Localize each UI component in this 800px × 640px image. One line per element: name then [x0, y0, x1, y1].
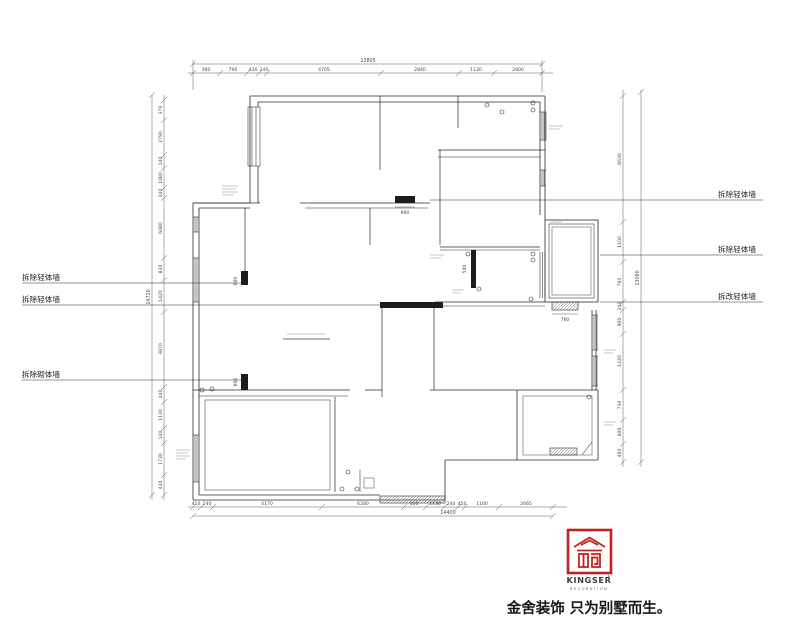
micro-annotations — [176, 126, 616, 459]
dim-value: 450 — [458, 501, 467, 507]
window-sill-br — [550, 448, 577, 455]
dim-value: 240 — [260, 67, 269, 73]
dim-value: 4170 — [261, 501, 273, 507]
dim-value: 8630 — [617, 153, 623, 165]
registered-mark: ® — [607, 575, 610, 579]
dim-value: 430 — [158, 481, 164, 490]
window-east-4 — [592, 356, 598, 386]
dim-value: 730 — [617, 401, 623, 410]
dim-value: 6080 — [158, 222, 164, 234]
window-sill-annex — [552, 302, 578, 310]
dim-sill: 760 — [561, 317, 570, 323]
dimension-chain-top — [188, 60, 553, 92]
room-bottom-left-inner — [205, 400, 330, 490]
dim-value: 1080 — [158, 172, 164, 184]
window-west-1 — [193, 217, 199, 232]
dim-values-left: 370 2790 140 1080 240 6080 830 1420 3870… — [146, 106, 164, 490]
dim-value: 1420 — [158, 290, 164, 302]
tick-marks — [190, 504, 556, 519]
dim-total-top: 13805 — [360, 58, 375, 64]
dim-opening: 900 — [401, 210, 410, 216]
dim-value: 900 — [617, 318, 623, 327]
cad-floorplan-sheet: 390 790 430 240 4705 2840 1130 2800 1380… — [0, 0, 800, 640]
label-right-2: 拆除轻体墙 — [718, 244, 756, 254]
room-bathroom — [435, 247, 545, 306]
dim-wall: 600 — [233, 277, 239, 286]
dim-value: 240 — [158, 189, 164, 198]
label-left-2: 拆除轻体墙 — [22, 294, 60, 304]
window-west-3 — [193, 435, 199, 482]
dim-value: 4705 — [318, 67, 330, 73]
brand-name: KINGSER — [567, 575, 612, 585]
dim-value: 6280 — [357, 501, 369, 507]
demolition-walls — [241, 196, 476, 390]
dim-value: 1420 — [617, 355, 623, 367]
floor-plan-svg: 390 790 430 240 4705 2840 1130 2800 1380… — [0, 0, 800, 640]
dim-wall: 500 — [462, 265, 468, 274]
dim-value: 460 — [617, 449, 623, 458]
kingser-logo: KINGSER ® DECORATION — [567, 530, 612, 591]
fixture-box — [364, 478, 374, 488]
dim-value: 600 — [617, 428, 623, 437]
room-bottom-right — [517, 390, 598, 460]
demolition-wall-d — [241, 374, 248, 390]
dim-value: 390 — [202, 67, 211, 73]
label-left-1: 拆除轻体墙 — [22, 272, 60, 282]
fixture-symbols — [200, 101, 591, 491]
dim-value: 1130 — [470, 67, 482, 73]
interior-dimensions: 900 760 500 600 600 — [233, 207, 578, 386]
dim-total-left: 14720 — [146, 289, 152, 304]
dim-wall: 600 — [233, 378, 239, 387]
dim-value: 440 — [158, 390, 164, 399]
dim-value: 830 — [158, 265, 164, 274]
demolition-wall-a — [395, 196, 415, 203]
dim-value: 430 — [249, 67, 258, 73]
dim-value: 240 — [617, 302, 623, 311]
dim-values-right: 8630 1100 760 240 900 1420 730 600 460 1… — [617, 153, 641, 457]
brand-slogan: 金舍装饰 只为别墅而生。 — [506, 599, 672, 617]
dim-total-bottom: 14400 — [440, 510, 455, 516]
dim-value: 1100 — [617, 236, 623, 248]
window-sill-bottom — [380, 496, 445, 503]
dim-value: 240 — [203, 501, 212, 507]
dim-value: 140 — [158, 431, 164, 440]
dim-value: 2790 — [158, 131, 164, 143]
label-right-3: 拆改轻体墙 — [718, 291, 756, 301]
dim-value: 240 — [447, 501, 456, 507]
dim-value: 410 — [192, 501, 201, 507]
dim-value: 140 — [158, 157, 164, 166]
window-bath-annex — [540, 252, 545, 298]
dim-value: 1730 — [158, 453, 164, 465]
dimension-chain-bottom — [188, 504, 567, 519]
logo-glyph — [574, 538, 605, 568]
label-right-1: 拆除轻体墙 — [718, 189, 756, 199]
dim-value: 760 — [617, 278, 623, 287]
dim-value: 370 — [158, 106, 164, 115]
plan-walls — [193, 96, 598, 503]
label-left-3: 拆除砌体墙 — [22, 369, 60, 379]
window-west-2 — [193, 258, 199, 302]
dim-value: 1100 — [476, 501, 488, 507]
dim-value: 2800 — [512, 67, 524, 73]
balcony-annex — [545, 220, 598, 302]
dim-value: 2665 — [520, 501, 532, 507]
dim-value: 2840 — [414, 67, 426, 73]
dim-value: 3870 — [158, 343, 164, 355]
corner-diagonal — [582, 442, 592, 455]
dim-values-bottom: 410 240 4170 6280 110 1130 240 450 1100 … — [192, 501, 532, 516]
dim-total-right: 13060 — [635, 270, 641, 285]
window-east-3 — [592, 315, 598, 350]
dim-values-top: 390 790 430 240 4705 2840 1130 2800 1380… — [202, 58, 524, 73]
brand-subtitle: DECORATION — [570, 587, 609, 591]
dim-value: 790 — [229, 67, 238, 73]
dim-value: 1130 — [158, 409, 164, 421]
demolition-wall-e — [471, 250, 476, 288]
leader-lines — [22, 200, 763, 380]
demolition-labels: 拆除轻体墙 拆除轻体墙 拆除砌体墙 拆除轻体墙 拆除轻体墙 拆改轻体墙 — [22, 189, 756, 379]
